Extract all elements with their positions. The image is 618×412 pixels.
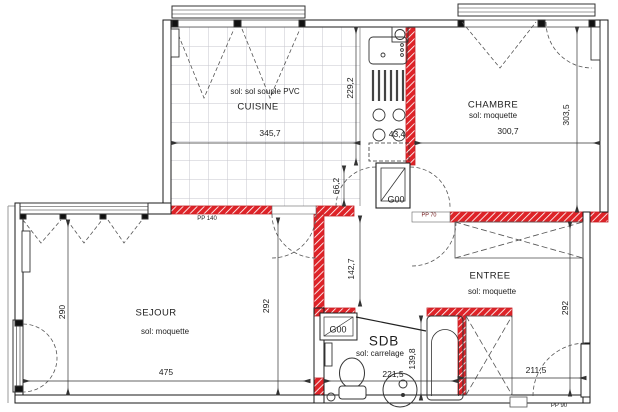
sejour-floor-label: sol: moquette: [141, 328, 189, 336]
chambre-name-label: CHAMBRE: [468, 100, 518, 110]
dim-cuisine-depth: 229,2: [346, 77, 355, 98]
dim-entree-width: 211,5: [526, 366, 547, 375]
dim-entree-depth: 292: [561, 301, 570, 315]
sdb-floor-label: sol: carrelage: [356, 350, 404, 358]
entree-name-label: ENTREE: [470, 271, 511, 281]
sdb-name-label: SDB: [369, 334, 399, 348]
door-label-g00-kitchen: G00: [387, 196, 404, 205]
cuisine-floor-label: sol: sol souple PVC: [230, 88, 299, 96]
entrance-step: [510, 397, 527, 407]
dim-sdb-depth: 139,8: [408, 348, 417, 369]
chambre-floor-label: sol: moquette: [469, 112, 517, 120]
dim-sdb-width: 221,5: [382, 370, 403, 379]
dim-chambre-depth: 303,5: [562, 104, 571, 125]
dim-cuisine-width: 345,7: [259, 129, 280, 138]
entree-floor-label: sol: moquette: [468, 288, 516, 296]
door-label-g00-sdb: G00: [329, 326, 346, 335]
door-label-pp70: PP 70: [422, 213, 437, 219]
floor-plan: sol: sol souple PVC CUISINE 345,7 229,2 …: [0, 0, 618, 412]
cuisine-name-label: CUISINE: [237, 102, 278, 112]
dim-sejour-width: 475: [159, 368, 173, 377]
dim-entree-corridor: 142,7: [347, 258, 356, 279]
door-label-pp90: PP 90: [551, 403, 567, 409]
entrance-door: [581, 344, 590, 397]
dim-sejour-depth-left: 290: [58, 305, 67, 319]
dim-chambre-width: 300,7: [497, 127, 518, 136]
door-label-pp140: PP 140: [197, 216, 217, 222]
dim-kitchen-unit: 43,4: [389, 130, 406, 139]
dim-sejour-depth-right: 292: [262, 299, 271, 313]
sejour-name-label: SEJOUR: [136, 308, 177, 318]
dim-kitchen-door-gap: 66,2: [332, 178, 341, 195]
